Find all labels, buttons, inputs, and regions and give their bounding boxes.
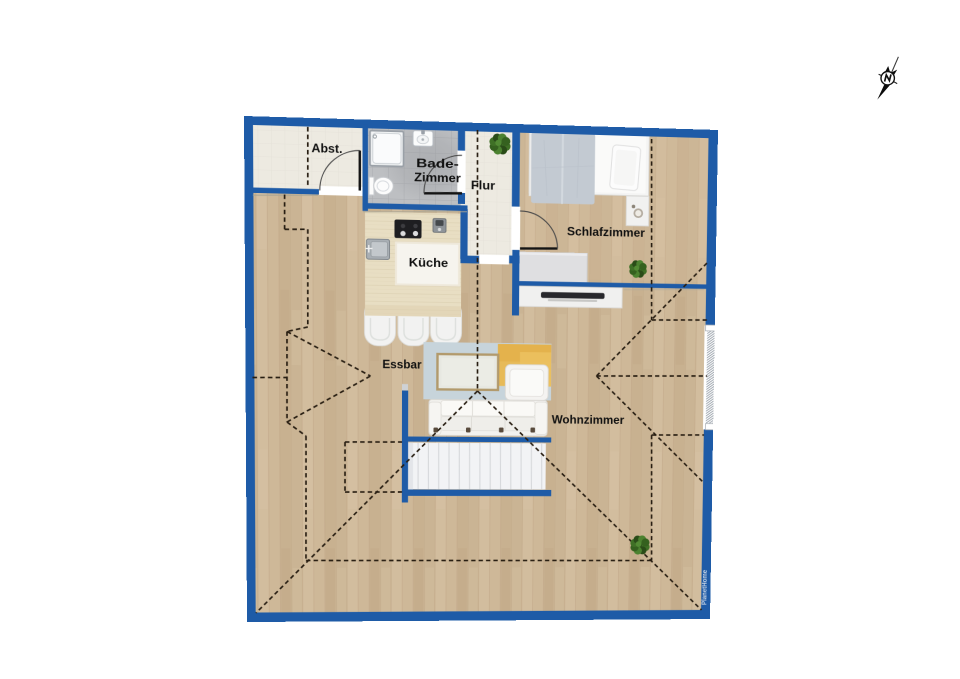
svg-text:Essbar: Essbar bbox=[382, 358, 421, 372]
svg-text:Wohnzimmer: Wohnzimmer bbox=[552, 413, 625, 427]
svg-text:Küche: Küche bbox=[409, 256, 448, 270]
svg-text:Bade-: Bade- bbox=[416, 156, 459, 171]
svg-text:Zimmer: Zimmer bbox=[414, 171, 461, 186]
svg-text:Flur: Flur bbox=[471, 179, 495, 193]
svg-text:PlanetHome: PlanetHome bbox=[700, 570, 709, 605]
svg-text:Schlafzimmer: Schlafzimmer bbox=[567, 225, 645, 240]
svg-text:Abst.: Abst. bbox=[312, 141, 343, 155]
